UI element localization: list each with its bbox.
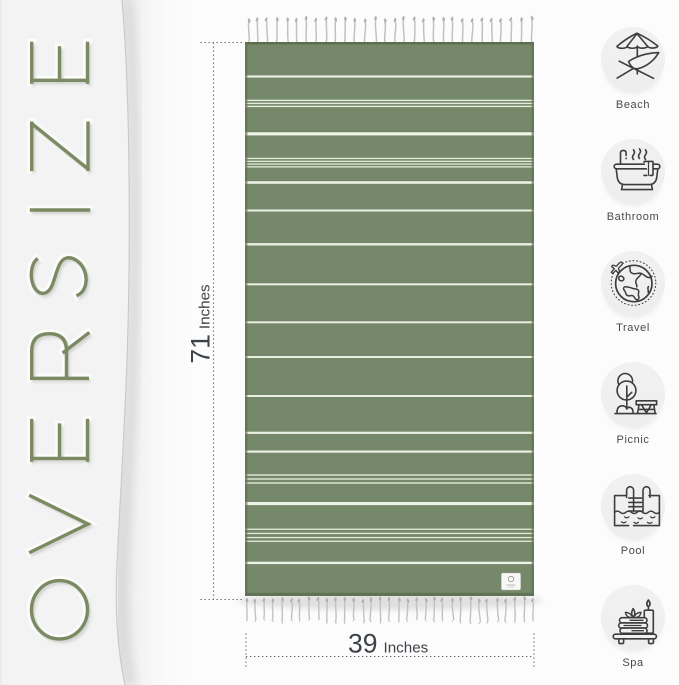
svg-text:Beach: Beach [616,99,650,111]
svg-text:Pool: Pool [621,545,645,557]
svg-text:Travel: Travel [616,322,650,334]
svg-text:Spa: Spa [622,657,644,669]
svg-text:Picnic: Picnic [617,434,650,446]
svg-text:Bathroom: Bathroom [607,211,660,223]
